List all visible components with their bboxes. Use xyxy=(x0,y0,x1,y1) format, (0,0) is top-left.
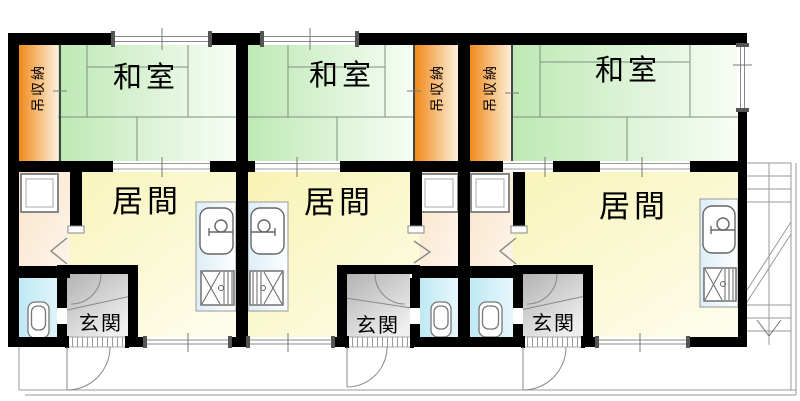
unit1-entrance-label: 玄関 xyxy=(79,311,123,335)
unit3-toilet-icon xyxy=(479,302,502,337)
unit1-kitchen xyxy=(196,202,236,311)
unit1-living-label: 居間 xyxy=(112,184,182,220)
unit2-stove-icon xyxy=(250,271,283,305)
divider-wall-1 xyxy=(236,45,248,337)
unit3-living-label: 居間 xyxy=(599,189,669,225)
unit3-washer-pan-icon xyxy=(471,174,509,212)
unit2-washer-pan-icon xyxy=(420,174,458,212)
unit2-front-door-icon xyxy=(345,336,414,387)
unit2-toilet-icon xyxy=(431,302,451,337)
divider-wall-2 xyxy=(458,45,470,337)
unit1-front-door-icon xyxy=(65,336,129,390)
unit2-washitsu-label: 和室 xyxy=(309,58,375,92)
unit3-sink-icon xyxy=(703,206,735,253)
unit3-storage-label: 吊収納 xyxy=(483,64,499,112)
unit1-washitsu-label: 和室 xyxy=(113,60,179,94)
unit3-entrance-label: 玄関 xyxy=(532,311,576,335)
unit1-sink-icon xyxy=(200,208,233,254)
unit1-stove-icon xyxy=(201,271,234,305)
unit3-stove-icon xyxy=(704,268,736,301)
floor-plan-svg: 和室 和室 和室 居間 居間 居間 玄関 玄関 玄関 吊収納 吊収納 吊収納 xyxy=(0,0,800,401)
unit1-toilet-icon xyxy=(28,302,49,338)
unit2-kitchen xyxy=(248,202,288,311)
unit2-living-label: 居間 xyxy=(304,185,374,221)
unit2-entrance-label: 玄関 xyxy=(356,313,400,337)
unit3-washitsu-label: 和室 xyxy=(595,53,661,87)
left-wall xyxy=(8,33,19,347)
unit2-storage-label: 吊収納 xyxy=(430,64,446,112)
unit2-sink-icon xyxy=(251,208,284,254)
floor-plan-page: 和室 和室 和室 居間 居間 居間 玄関 玄関 玄関 吊収納 吊収納 吊収納 xyxy=(0,0,800,401)
unit3-kitchen xyxy=(700,199,738,307)
unit3-front-door-icon xyxy=(521,336,585,390)
stairs-icon xyxy=(747,163,791,345)
unit1-storage-label: 吊収納 xyxy=(31,64,47,112)
unit1-washer-pan-icon xyxy=(21,174,58,212)
